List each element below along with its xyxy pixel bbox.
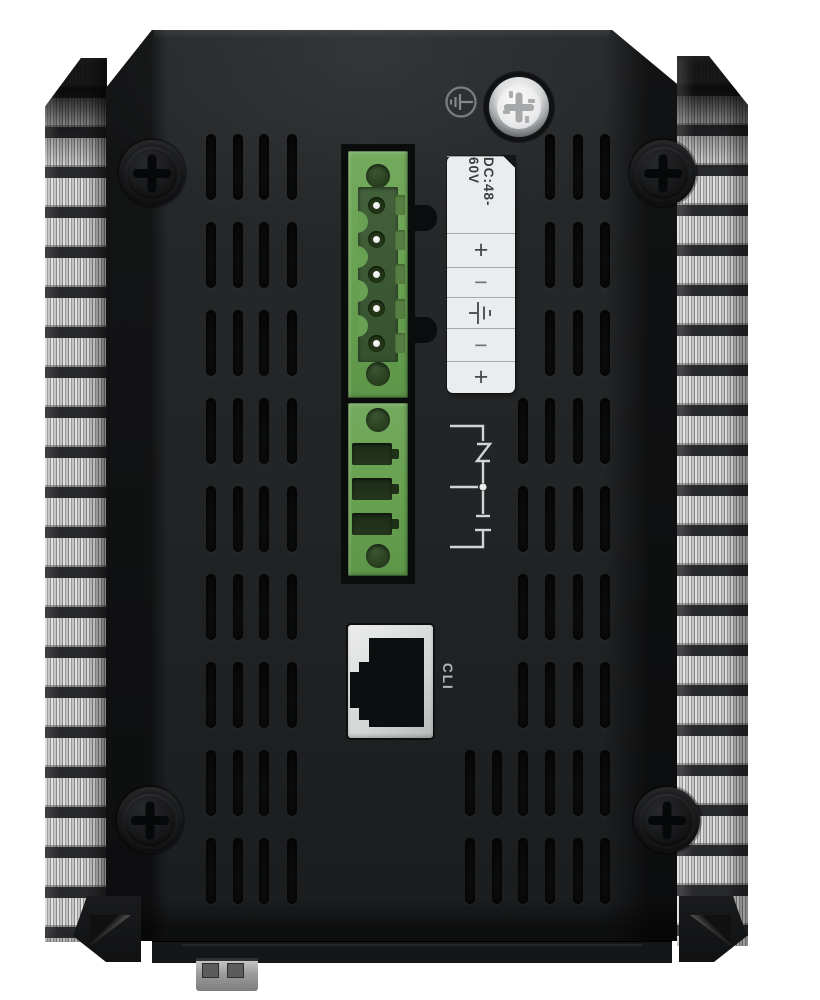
connector-pin <box>202 963 219 978</box>
terminal-screw-hole <box>366 164 390 188</box>
console-port-rj45 <box>348 625 433 738</box>
rj45-socket-opening <box>348 625 433 738</box>
terminal-symbol-negative: − <box>447 267 515 297</box>
corner-screw-top-left <box>119 140 185 206</box>
relay-terminal-block <box>348 403 408 576</box>
terminal-symbol-positive: + <box>447 361 515 393</box>
label-fold-corner <box>501 155 516 170</box>
terminal-pin <box>368 197 385 214</box>
earth-ground-icon <box>468 301 494 325</box>
terminal-screw-hole <box>366 362 390 386</box>
relay-contact-diagram-icon <box>440 415 510 555</box>
mounting-ear-hole <box>90 915 131 946</box>
power-rating-text: DC:48-60V <box>466 157 496 233</box>
corner-screw-bottom-right <box>634 787 700 853</box>
power-label: DC:48-60V + − − + <box>447 156 515 393</box>
terminal-latch-tab <box>410 205 437 231</box>
bottom-edge-connector <box>196 958 258 991</box>
mounting-ear-hole <box>690 915 731 946</box>
corner-screw-top-right <box>630 140 696 206</box>
relay-wire-slot <box>352 513 392 535</box>
power-terminal-plug <box>348 151 408 398</box>
corner-screw-bottom-left <box>117 787 183 853</box>
terminal-pin <box>368 231 385 248</box>
relay-wire-slot <box>352 478 392 500</box>
grounding-screw <box>483 71 555 143</box>
terminal-screw-hole <box>366 544 390 568</box>
connector-pin <box>227 963 244 978</box>
relay-wire-slot <box>352 443 392 465</box>
terminal-pin <box>368 300 385 317</box>
terminal-pin-housing <box>358 187 398 362</box>
console-port-label: CLI <box>440 663 455 691</box>
terminal-symbol-ground <box>447 297 515 328</box>
heatsink-fins-left <box>45 58 107 942</box>
terminal-latch-tab <box>410 317 437 343</box>
terminal-screw-hole <box>366 408 390 432</box>
device-photo: DC:48-60V + − − + <box>0 0 820 1000</box>
terminal-pin <box>368 335 385 352</box>
terminal-symbol-negative: − <box>447 328 515 361</box>
terminal-symbol-positive: + <box>447 233 515 267</box>
grounding-screw-head <box>497 85 541 129</box>
earth-ground-symbol-icon <box>443 85 479 121</box>
phillips-cross-icon <box>516 92 523 122</box>
terminal-pin <box>368 266 385 283</box>
